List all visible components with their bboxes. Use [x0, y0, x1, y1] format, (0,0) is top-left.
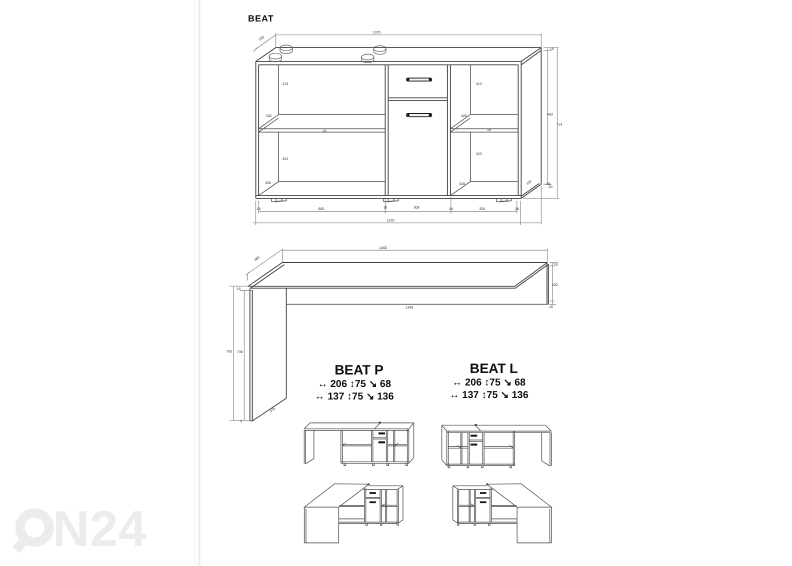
svg-text:18: 18	[487, 128, 491, 132]
svg-text:714: 714	[556, 123, 562, 127]
svg-text:482: 482	[547, 113, 553, 117]
svg-text:↔ 137 ↕75 ↘ 136: ↔ 137 ↕75 ↘ 136	[449, 390, 528, 401]
svg-text:730: 730	[237, 350, 243, 354]
svg-text:16: 16	[550, 47, 554, 51]
svg-text:1360: 1360	[379, 246, 387, 250]
svg-text:BEAT: BEAT	[248, 14, 274, 24]
svg-text:330: 330	[479, 207, 485, 211]
svg-text:328: 328	[459, 182, 465, 186]
svg-text:323: 323	[476, 152, 482, 156]
svg-text:313: 313	[282, 82, 288, 86]
svg-text:660: 660	[318, 207, 324, 211]
svg-text:18: 18	[383, 206, 387, 210]
svg-text:16: 16	[237, 287, 241, 291]
svg-text:323: 323	[282, 157, 288, 161]
svg-text:18: 18	[449, 207, 453, 211]
svg-text:18: 18	[257, 207, 261, 211]
svg-text:20: 20	[549, 185, 553, 189]
svg-text:4: 4	[240, 419, 242, 423]
svg-text:308: 308	[414, 206, 420, 210]
svg-text:328: 328	[265, 181, 271, 185]
svg-text:1370: 1370	[387, 219, 395, 223]
svg-text:200: 200	[552, 283, 558, 287]
svg-text:N24: N24	[53, 500, 147, 557]
svg-text:313: 313	[476, 82, 482, 86]
svg-text:16: 16	[554, 262, 558, 266]
svg-text:326: 326	[461, 114, 467, 118]
svg-text:BEAT L: BEAT L	[470, 361, 518, 376]
svg-text:↔ 137 ↕75 ↘ 136: ↔ 137 ↕75 ↘ 136	[315, 391, 394, 402]
svg-text:↔ 206 ↕75 ↘ 68: ↔ 206 ↕75 ↘ 68	[452, 378, 526, 389]
svg-text:18: 18	[515, 207, 519, 211]
svg-text:1340: 1340	[405, 305, 413, 309]
svg-text:18: 18	[323, 129, 327, 133]
svg-text:750: 750	[226, 349, 232, 353]
svg-text:326: 326	[266, 114, 272, 118]
svg-text:16: 16	[549, 305, 553, 309]
svg-text:BEAT P: BEAT P	[335, 363, 384, 378]
svg-text:↔ 206 ↕75 ↘ 68: ↔ 206 ↕75 ↘ 68	[318, 379, 392, 390]
svg-text:1370: 1370	[373, 30, 381, 34]
